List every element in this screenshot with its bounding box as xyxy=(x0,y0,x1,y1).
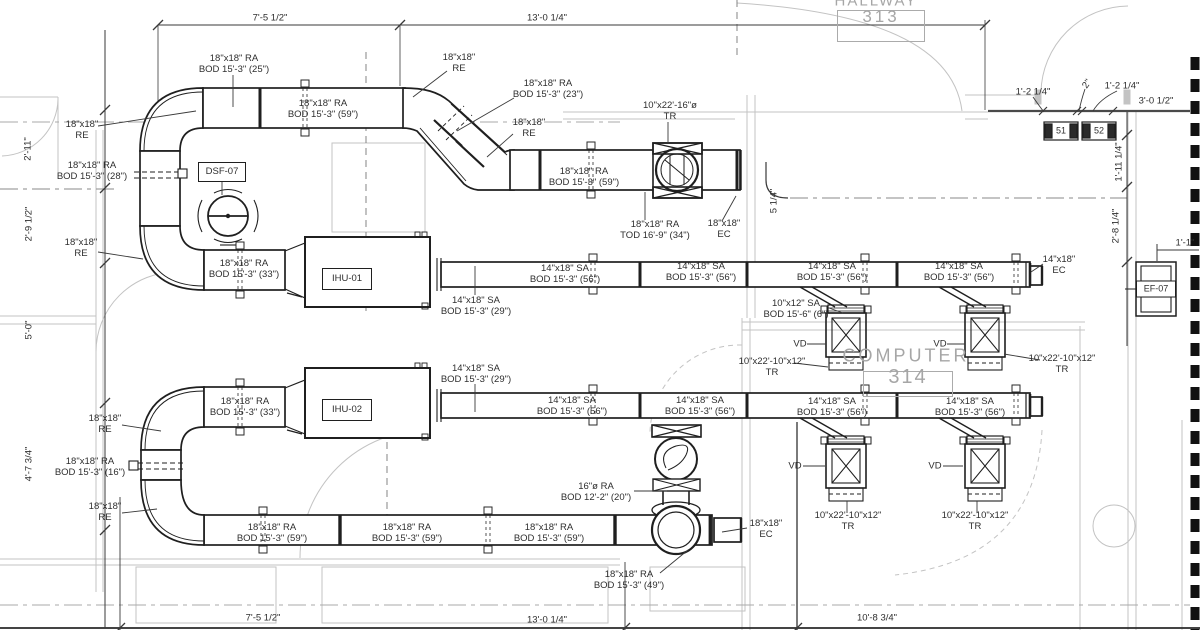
hallway-room-number: 313 xyxy=(837,10,925,42)
vd-r1-left: VD xyxy=(793,339,806,350)
ec-bot: 18"x18" EC xyxy=(750,518,783,540)
diffuser-52-tag: 52 xyxy=(1094,126,1104,137)
sa-56-r2d: 14"x18" SA BOD 15'-3" (56") xyxy=(935,396,1005,418)
ra-59-top: 18"x18" RA BOD 15'-3" (59") xyxy=(288,98,358,120)
ra-59-b2: 18"x18" RA BOD 15'-3" (59") xyxy=(372,522,442,544)
tr-r2-right: 10"x22'-10"x12" TR xyxy=(942,510,1009,532)
dim-diffuser-right: 1'-2 1/4" xyxy=(1105,81,1140,92)
computer-room-number: 314 xyxy=(863,371,953,397)
ra-23: 18"x18" RA BOD 15'-3" (23") xyxy=(513,78,583,100)
tr-r1-right: 10"x22'-10"x12" TR xyxy=(1029,353,1096,375)
sa-56-r2a: 14"x18" SA BOD 15'-3" (56") xyxy=(537,395,607,417)
sa-56-r1a: 14"x18" SA BOD 15'-3" (56") xyxy=(530,263,600,285)
sa-29-r2: 14"x18" SA BOD 15'-3" (29") xyxy=(441,363,511,385)
label-layer: HALLWAY 313 COMPUTER 314 DSF-07 IHU-01 I… xyxy=(0,0,1200,630)
re-bot-2: 18"x18" RE xyxy=(89,501,122,523)
ra-33-top: 18"x18" RA BOD 15'-3" (33") xyxy=(209,258,279,280)
ra-16dia: 16"ø RA BOD 12'-2" (20") xyxy=(561,481,631,503)
diffuser-51-tag: 51 xyxy=(1056,126,1066,137)
hallway-room-name: HALLWAY xyxy=(835,0,918,7)
sa-29-r1: 14"x18" SA BOD 15'-3" (29") xyxy=(441,295,511,317)
dim-left-3: 5'-0" xyxy=(24,321,35,340)
ef-07-tag: EF-07 xyxy=(1136,281,1176,298)
sa-56-r2c: 14"x18" SA BOD 15'-3" (56") xyxy=(797,396,867,418)
dim-bot-right: 10'-8 3/4" xyxy=(857,613,897,624)
ihu-01-tag: IHU-01 xyxy=(322,268,372,290)
dim-ef: 1'-1" xyxy=(1176,238,1195,249)
ra-33-bot: 18"x18" RA BOD 15'-3" (33") xyxy=(210,396,280,418)
dim-right-upper: 1'-11 1/4" xyxy=(1114,142,1125,181)
ra-tod-34: 18"x18" RA TOD 16'-9" (34") xyxy=(620,219,690,241)
sa-56-r1b: 14"x18" SA BOD 15'-3" (56") xyxy=(666,261,736,283)
ra-59-b3: 18"x18" RA BOD 15'-3" (59") xyxy=(514,522,584,544)
re-mid: 18"x18" RE xyxy=(513,117,546,139)
re-bot-1: 18"x18" RE xyxy=(89,413,122,435)
ra-59-b1: 18"x18" RA BOD 15'-3" (59") xyxy=(237,522,307,544)
dim-diffuser-gap: 2" xyxy=(1080,77,1094,90)
vd-r2-right: VD xyxy=(928,461,941,472)
ihu-02-tag: IHU-02 xyxy=(322,399,372,421)
dim-top-left: 7'-5 1/2" xyxy=(253,13,288,24)
tr-r1-left: 10"x22'-10"x12" TR xyxy=(739,356,806,378)
tr-r2-left: 10"x22'-10"x12" TR xyxy=(815,510,882,532)
duct-plan-canvas: HALLWAY 313 COMPUTER 314 DSF-07 IHU-01 I… xyxy=(0,0,1200,630)
dim-left-4: 4'-7 3/4" xyxy=(24,447,35,482)
ra-25: 18"x18" RA BOD 15'-3" (25") xyxy=(199,53,269,75)
vd-r2-left: VD xyxy=(788,461,801,472)
re-left-2: 18"x18" RE xyxy=(65,237,98,259)
dim-right-lower: 2'-8 1/4" xyxy=(1111,209,1122,244)
computer-room-name: COMPUTER xyxy=(843,351,970,362)
tr-16: 10"x22'-16"ø TR xyxy=(643,100,697,122)
dim-wall-right: 3'-0 1/2" xyxy=(1139,96,1174,107)
dim-top-mid: 13'-0 1/4" xyxy=(527,13,567,24)
ra-49: 18"x18" RA BOD 15'-3" (49") xyxy=(594,569,664,591)
sa-10x12: 10"x12" SA BOD 15'-6" (6") xyxy=(763,298,828,320)
ec-r1: 14"x18" EC xyxy=(1043,254,1076,276)
sa-56-r1d: 14"x18" SA BOD 15'-3" (56") xyxy=(924,261,994,283)
dim-diffuser-left: 1'-2 1/4" xyxy=(1016,87,1051,98)
vd-r1-right: VD xyxy=(933,339,946,350)
ra-28: 18"x18" RA BOD 15'-3" (28") xyxy=(57,160,127,182)
re-top-mid: 18"x18" RE xyxy=(443,52,476,74)
dim-left-2: 2'-9 1/2" xyxy=(24,207,35,242)
dim-bot-left: 7'-5 1/2" xyxy=(246,613,281,624)
dim-left-1: 2'-11" xyxy=(23,137,34,161)
ra-16: 18"x18" RA BOD 15'-3" (16") xyxy=(55,456,125,478)
ec-top: 18"x18" EC xyxy=(708,218,741,240)
dsf-07-tag: DSF-07 xyxy=(198,162,246,182)
sa-56-r2b: 14"x18" SA BOD 15'-3" (56") xyxy=(665,395,735,417)
sa-56-r1c: 14"x18" SA BOD 15'-3" (56") xyxy=(797,261,867,283)
ra-59-mid: 18"x18" RA BOD 15'-3" (59") xyxy=(549,166,619,188)
dim-riser-offset: 5 1/4" xyxy=(769,189,780,214)
dim-bot-mid: 13'-0 1/4" xyxy=(527,615,567,626)
re-top-left: 18"x18" RE xyxy=(66,119,99,141)
